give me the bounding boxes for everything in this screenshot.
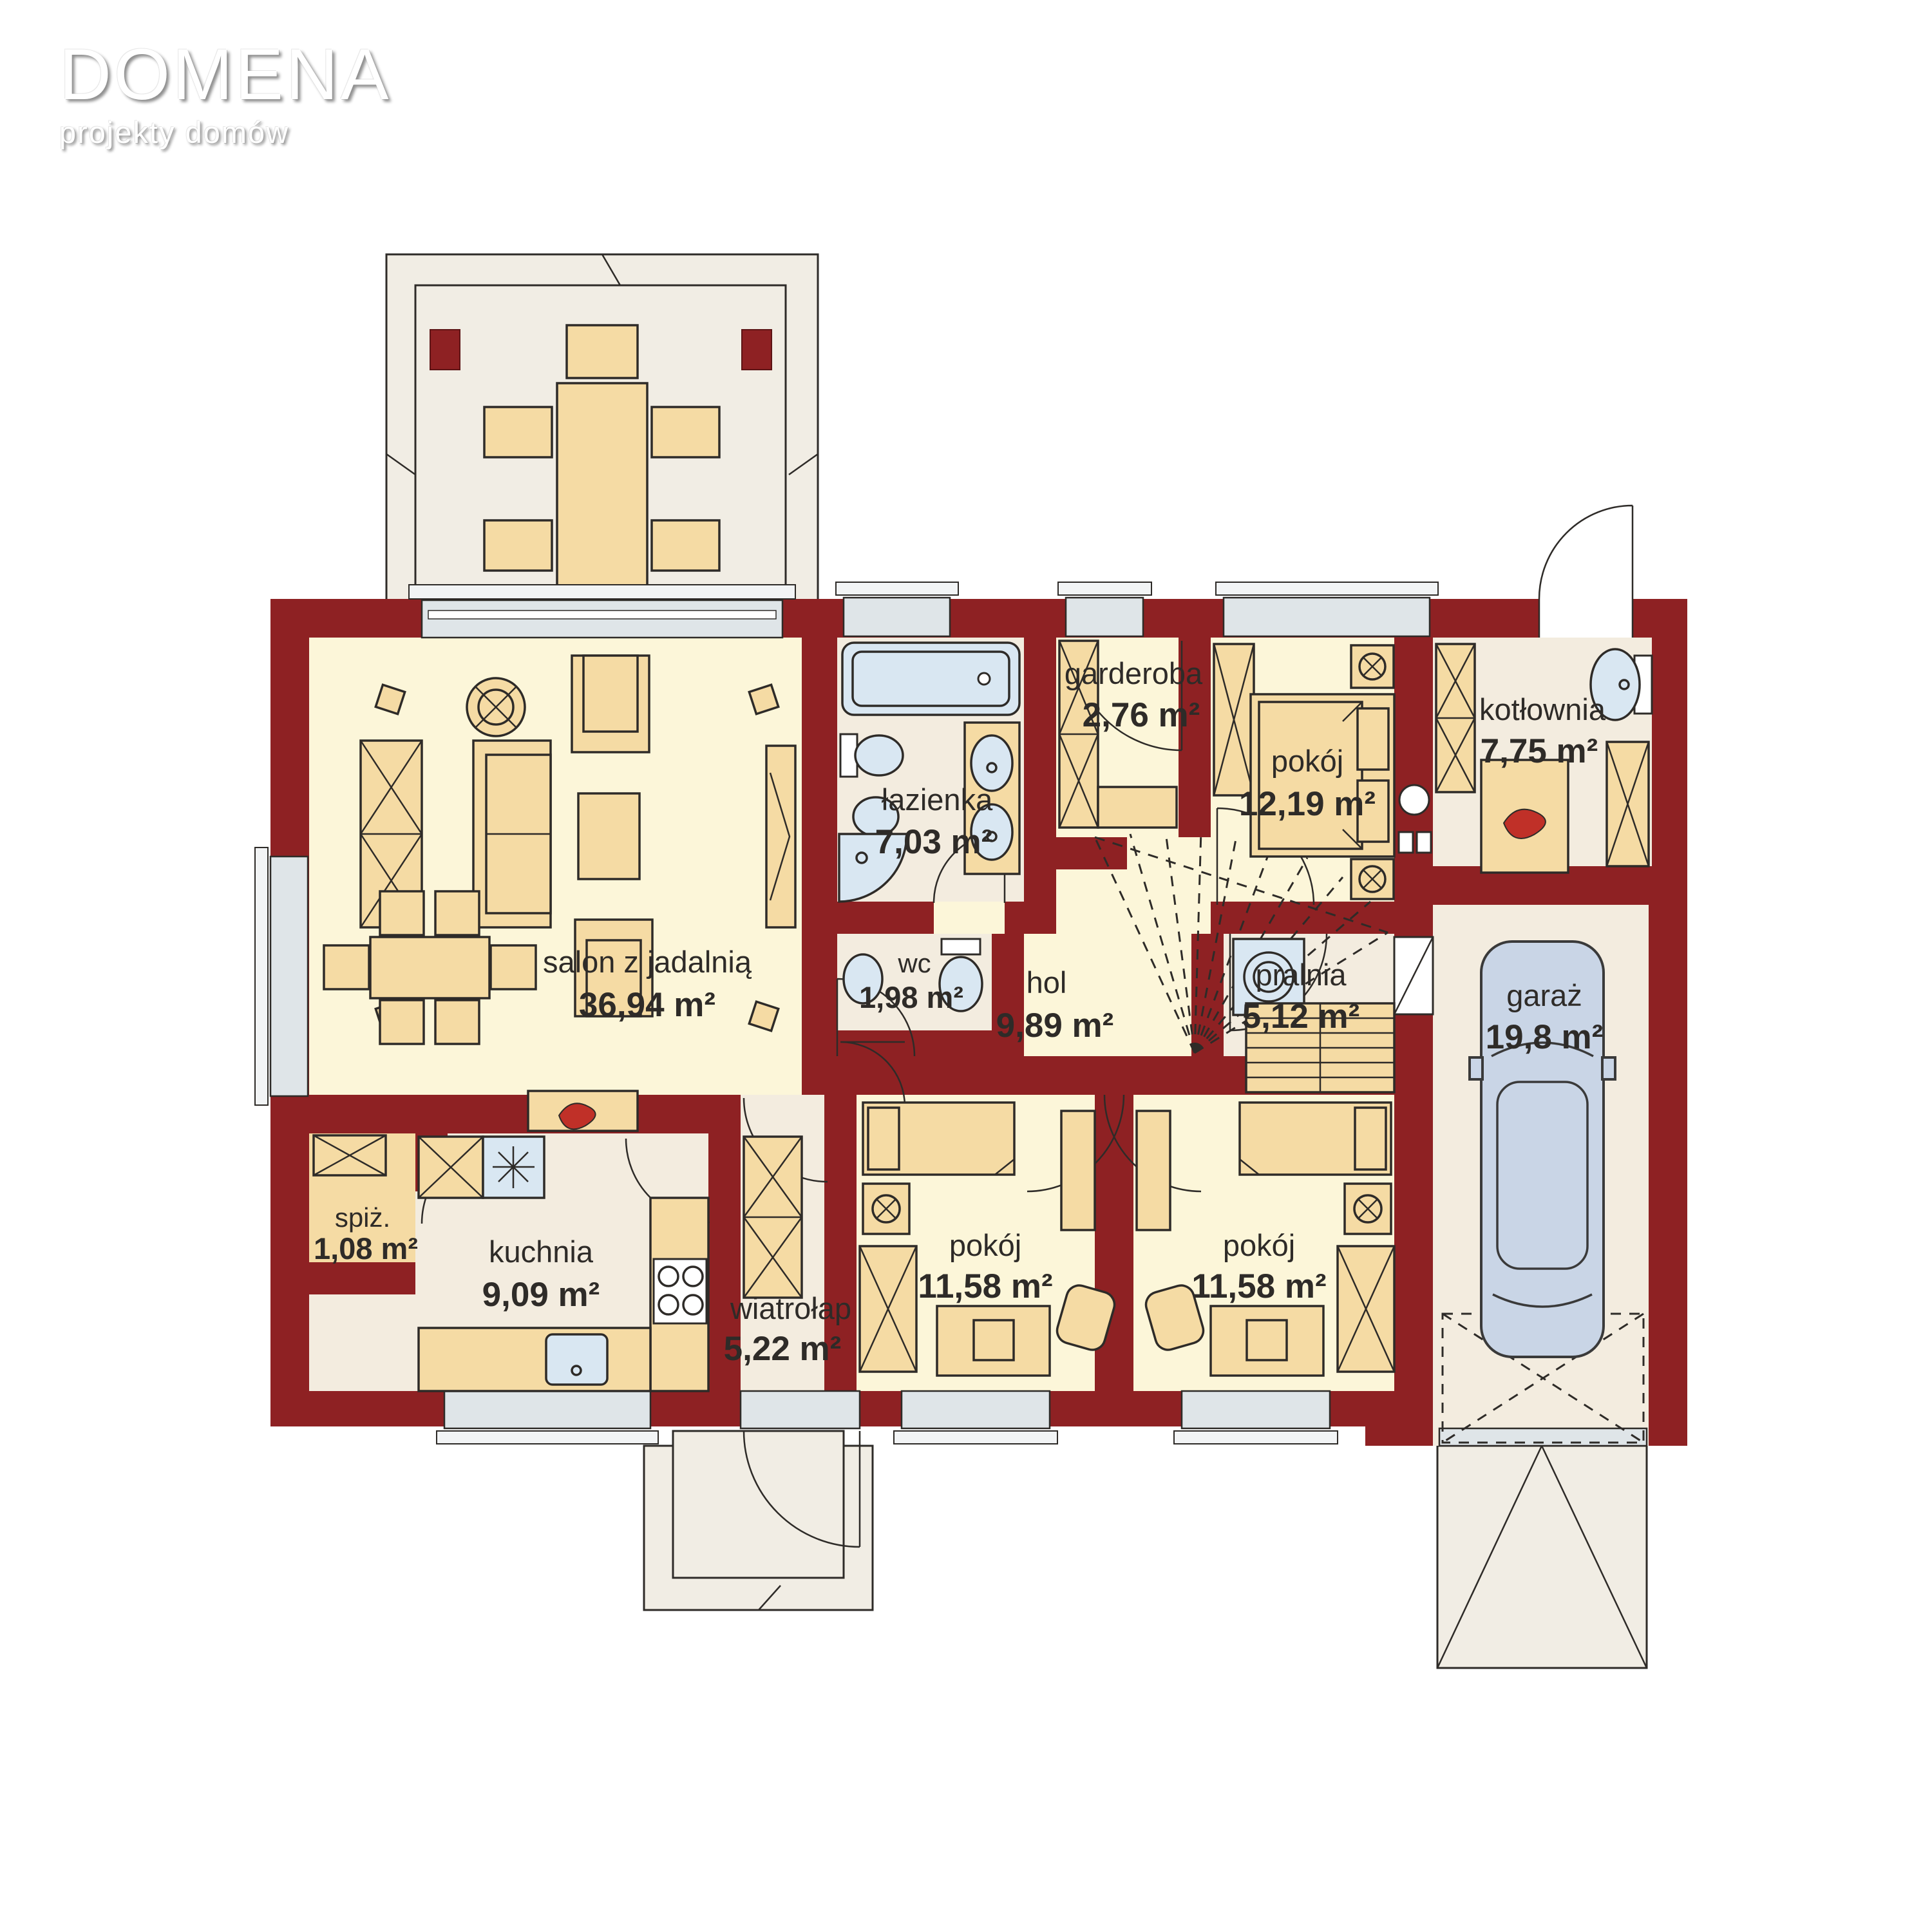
room-label: wiatrołap	[730, 1291, 851, 1325]
dining-chair	[324, 945, 369, 989]
window-sill	[1174, 1431, 1338, 1444]
wall-hol-bottom-a	[824, 1056, 1024, 1095]
desk	[937, 1306, 1050, 1376]
car-mirror	[1470, 1057, 1482, 1079]
pillow	[868, 1108, 899, 1170]
kitchen-counter-bottom	[419, 1328, 650, 1391]
window-sill	[437, 1431, 658, 1444]
room-area: 7,03 m²	[875, 823, 993, 861]
room-area: 1,98 m²	[859, 980, 963, 1014]
dining-chair	[380, 1000, 424, 1044]
dining-chair	[435, 891, 479, 935]
meter-box	[1399, 832, 1413, 853]
porch-step	[673, 1431, 844, 1578]
wiatrolap-hol-opening	[741, 1095, 824, 1133]
room-area: 7,75 m²	[1481, 732, 1598, 770]
room-label: kuchnia	[489, 1235, 594, 1269]
room-label: salon z jadalnią	[543, 945, 752, 979]
terrace-chair	[484, 520, 552, 571]
room-label: garderoba	[1065, 656, 1203, 690]
wall-garderoba-bottom	[1056, 837, 1127, 869]
room-label: łazienka	[882, 782, 993, 817]
kotlownia-door-opening	[1539, 599, 1633, 638]
entry-porch	[644, 1431, 873, 1610]
dining-chair	[380, 891, 424, 935]
bookshelf	[1061, 1111, 1095, 1230]
meter-box	[1417, 832, 1431, 853]
pillow	[1355, 1108, 1386, 1170]
armchair-seat	[583, 656, 638, 732]
wall-hol-bottom-b	[1095, 1056, 1137, 1095]
room-area: 9,89 m²	[996, 1007, 1114, 1045]
floorplan-drawing: salon z jadalnią 36,94 m² kuchnia 9,09 m…	[0, 0, 1932, 1932]
floorplan-page: DOMENA projekty domów	[0, 0, 1932, 1932]
dining-chair	[435, 1000, 479, 1044]
terrace-table	[557, 383, 647, 589]
kitchen-sink	[546, 1334, 607, 1385]
garderoba-window	[1066, 598, 1143, 636]
room-label: wc	[897, 948, 931, 978]
coffee-table	[578, 793, 639, 879]
pokoj3-window	[1224, 598, 1430, 636]
window-sill	[1058, 582, 1151, 595]
wall-spiz-bottom	[309, 1262, 415, 1294]
window-sill	[1216, 582, 1438, 595]
room-label: spiż.	[335, 1202, 390, 1233]
room-label: hol	[1027, 965, 1067, 999]
room-area: 5,12 m²	[1242, 998, 1360, 1036]
room-area: 1,08 m²	[314, 1231, 418, 1265]
wall-salon-right-upper	[802, 638, 837, 979]
pokoj1-window	[902, 1391, 1050, 1428]
wall-lazienka-bottom-b	[1005, 902, 1056, 934]
dining-chair	[491, 945, 536, 989]
garage-canopy	[1437, 1446, 1647, 1668]
room-area: 12,19 m²	[1239, 785, 1376, 823]
entry-door	[741, 1391, 860, 1428]
dining-table	[370, 937, 489, 998]
bathtub-drain	[978, 673, 990, 685]
terrace-chair	[652, 520, 719, 571]
pokoj2-window	[1182, 1391, 1330, 1428]
pillow	[1358, 708, 1388, 770]
room-area: 36,94 m²	[579, 986, 715, 1024]
canopy-outline	[1437, 1446, 1647, 1668]
terrace-chair	[652, 407, 719, 457]
wall-kuchnia-wiatrolap-top	[708, 1095, 741, 1137]
terrace-door-glass	[428, 611, 776, 619]
garderoba-shelf	[1098, 787, 1177, 828]
terrace-post-icon	[742, 330, 772, 370]
vent-icon	[1399, 785, 1429, 815]
room-area: 5,22 m²	[724, 1330, 842, 1368]
wc-toilet-tank	[942, 939, 980, 954]
bathtub	[842, 643, 1019, 715]
bookshelf	[1137, 1111, 1170, 1230]
room-area: 19,8 m²	[1486, 1018, 1604, 1056]
salon-left-window	[270, 857, 308, 1096]
window-sill	[836, 582, 958, 595]
terrace-chair	[567, 325, 638, 378]
window-sill	[894, 1431, 1057, 1444]
room-area: 11,58 m²	[918, 1267, 1052, 1305]
room-label: pokój	[1271, 744, 1343, 778]
room-label: pralnia	[1255, 958, 1347, 992]
wall-lazienka-garderoba	[1024, 638, 1056, 902]
lazienka-window	[844, 598, 950, 636]
room-label: pokój	[1223, 1228, 1295, 1262]
room-area: 11,58 m²	[1191, 1267, 1326, 1305]
window-sill	[255, 848, 268, 1105]
terrace-post-icon	[430, 330, 460, 370]
room-area: 2,76 m²	[1083, 696, 1200, 734]
desk	[1211, 1306, 1323, 1376]
toilet-bowl	[855, 735, 903, 775]
room-label: kotłownia	[1479, 692, 1606, 726]
room-area: 9,09 m²	[482, 1276, 600, 1314]
kuchnia-window	[444, 1391, 650, 1428]
wall-lazienka-bottom-a	[837, 902, 934, 934]
room-label: garaż	[1506, 978, 1582, 1012]
terrace-chair	[484, 407, 552, 457]
terrace-door-sill	[409, 585, 795, 599]
room-label: pokój	[949, 1228, 1021, 1262]
car-mirror	[1602, 1057, 1615, 1079]
